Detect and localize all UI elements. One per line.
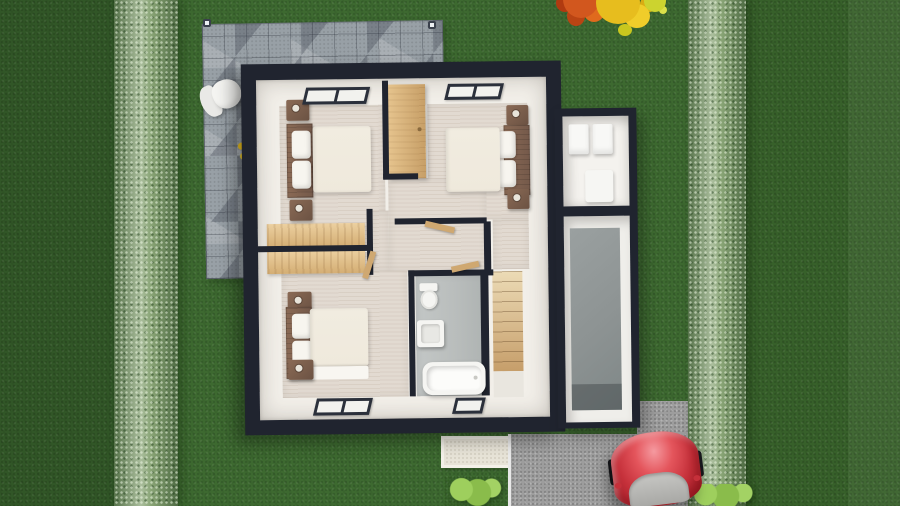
lawn-highlight bbox=[848, 0, 900, 506]
main-house bbox=[241, 61, 566, 436]
red-car bbox=[608, 427, 704, 506]
bedroom3-bed bbox=[286, 289, 374, 462]
window-bathroom bbox=[452, 397, 486, 413]
bedroom2-bed bbox=[442, 103, 531, 212]
toilet bbox=[418, 282, 440, 310]
toilet-bowl bbox=[421, 290, 438, 309]
washbasin-basin bbox=[421, 324, 440, 343]
washer bbox=[569, 124, 589, 154]
wall-center bbox=[382, 81, 389, 179]
bed-foot-sheet bbox=[310, 366, 368, 380]
corridor-floor bbox=[373, 211, 390, 272]
wall-center-jog bbox=[383, 173, 418, 179]
house-interior bbox=[256, 77, 550, 421]
bed-pillow bbox=[498, 160, 516, 187]
staircase bbox=[492, 271, 523, 371]
boundary-hedge-right bbox=[688, 0, 746, 506]
garage-annex bbox=[554, 108, 640, 429]
driveway-curb bbox=[508, 434, 511, 506]
garage-door-shadow bbox=[572, 384, 622, 411]
utility-room bbox=[562, 116, 629, 207]
window-pane bbox=[448, 87, 474, 97]
window-pane bbox=[336, 90, 366, 101]
dryer bbox=[593, 124, 613, 154]
window-pane bbox=[456, 401, 482, 411]
window-bedroom3 bbox=[313, 398, 373, 416]
garage bbox=[564, 216, 633, 423]
window-pane bbox=[474, 86, 500, 96]
staircase-landing bbox=[494, 371, 524, 397]
window-pane bbox=[306, 90, 336, 101]
bedroom1-desk bbox=[267, 223, 365, 247]
patio-spotlight bbox=[203, 19, 211, 27]
bed-duvet bbox=[313, 126, 372, 193]
house-building bbox=[241, 60, 641, 436]
lawn-left-strip bbox=[0, 0, 118, 506]
bed-pillow bbox=[498, 131, 516, 158]
nightstand bbox=[507, 189, 529, 209]
bedroom2-floor-ext bbox=[493, 219, 530, 269]
bed-pillow bbox=[292, 161, 311, 189]
bedroom1-bed bbox=[284, 97, 374, 222]
wall-landing-right bbox=[484, 221, 492, 273]
washbasin bbox=[417, 320, 444, 347]
window-pane bbox=[317, 401, 343, 412]
center-wardrobe bbox=[387, 84, 426, 178]
boundary-hedge-left bbox=[114, 0, 178, 506]
front-bush bbox=[444, 476, 502, 506]
patio-spotlight bbox=[428, 21, 436, 29]
bathtub-drain bbox=[474, 376, 478, 380]
floorplan-render-scene bbox=[0, 0, 900, 506]
bedroom3-desk bbox=[267, 250, 365, 274]
bed-pillow bbox=[292, 131, 311, 159]
nightstand bbox=[288, 360, 313, 380]
bathtub bbox=[422, 361, 485, 395]
window-pane bbox=[343, 401, 369, 412]
water-heater bbox=[585, 170, 613, 202]
nightstand bbox=[289, 200, 312, 221]
nightstand bbox=[506, 105, 528, 125]
bed-duvet bbox=[310, 308, 369, 367]
bed-duvet bbox=[446, 127, 501, 192]
front-walkway bbox=[441, 436, 511, 468]
window-bedroom1 bbox=[302, 87, 370, 105]
window-bedroom2 bbox=[444, 83, 504, 100]
